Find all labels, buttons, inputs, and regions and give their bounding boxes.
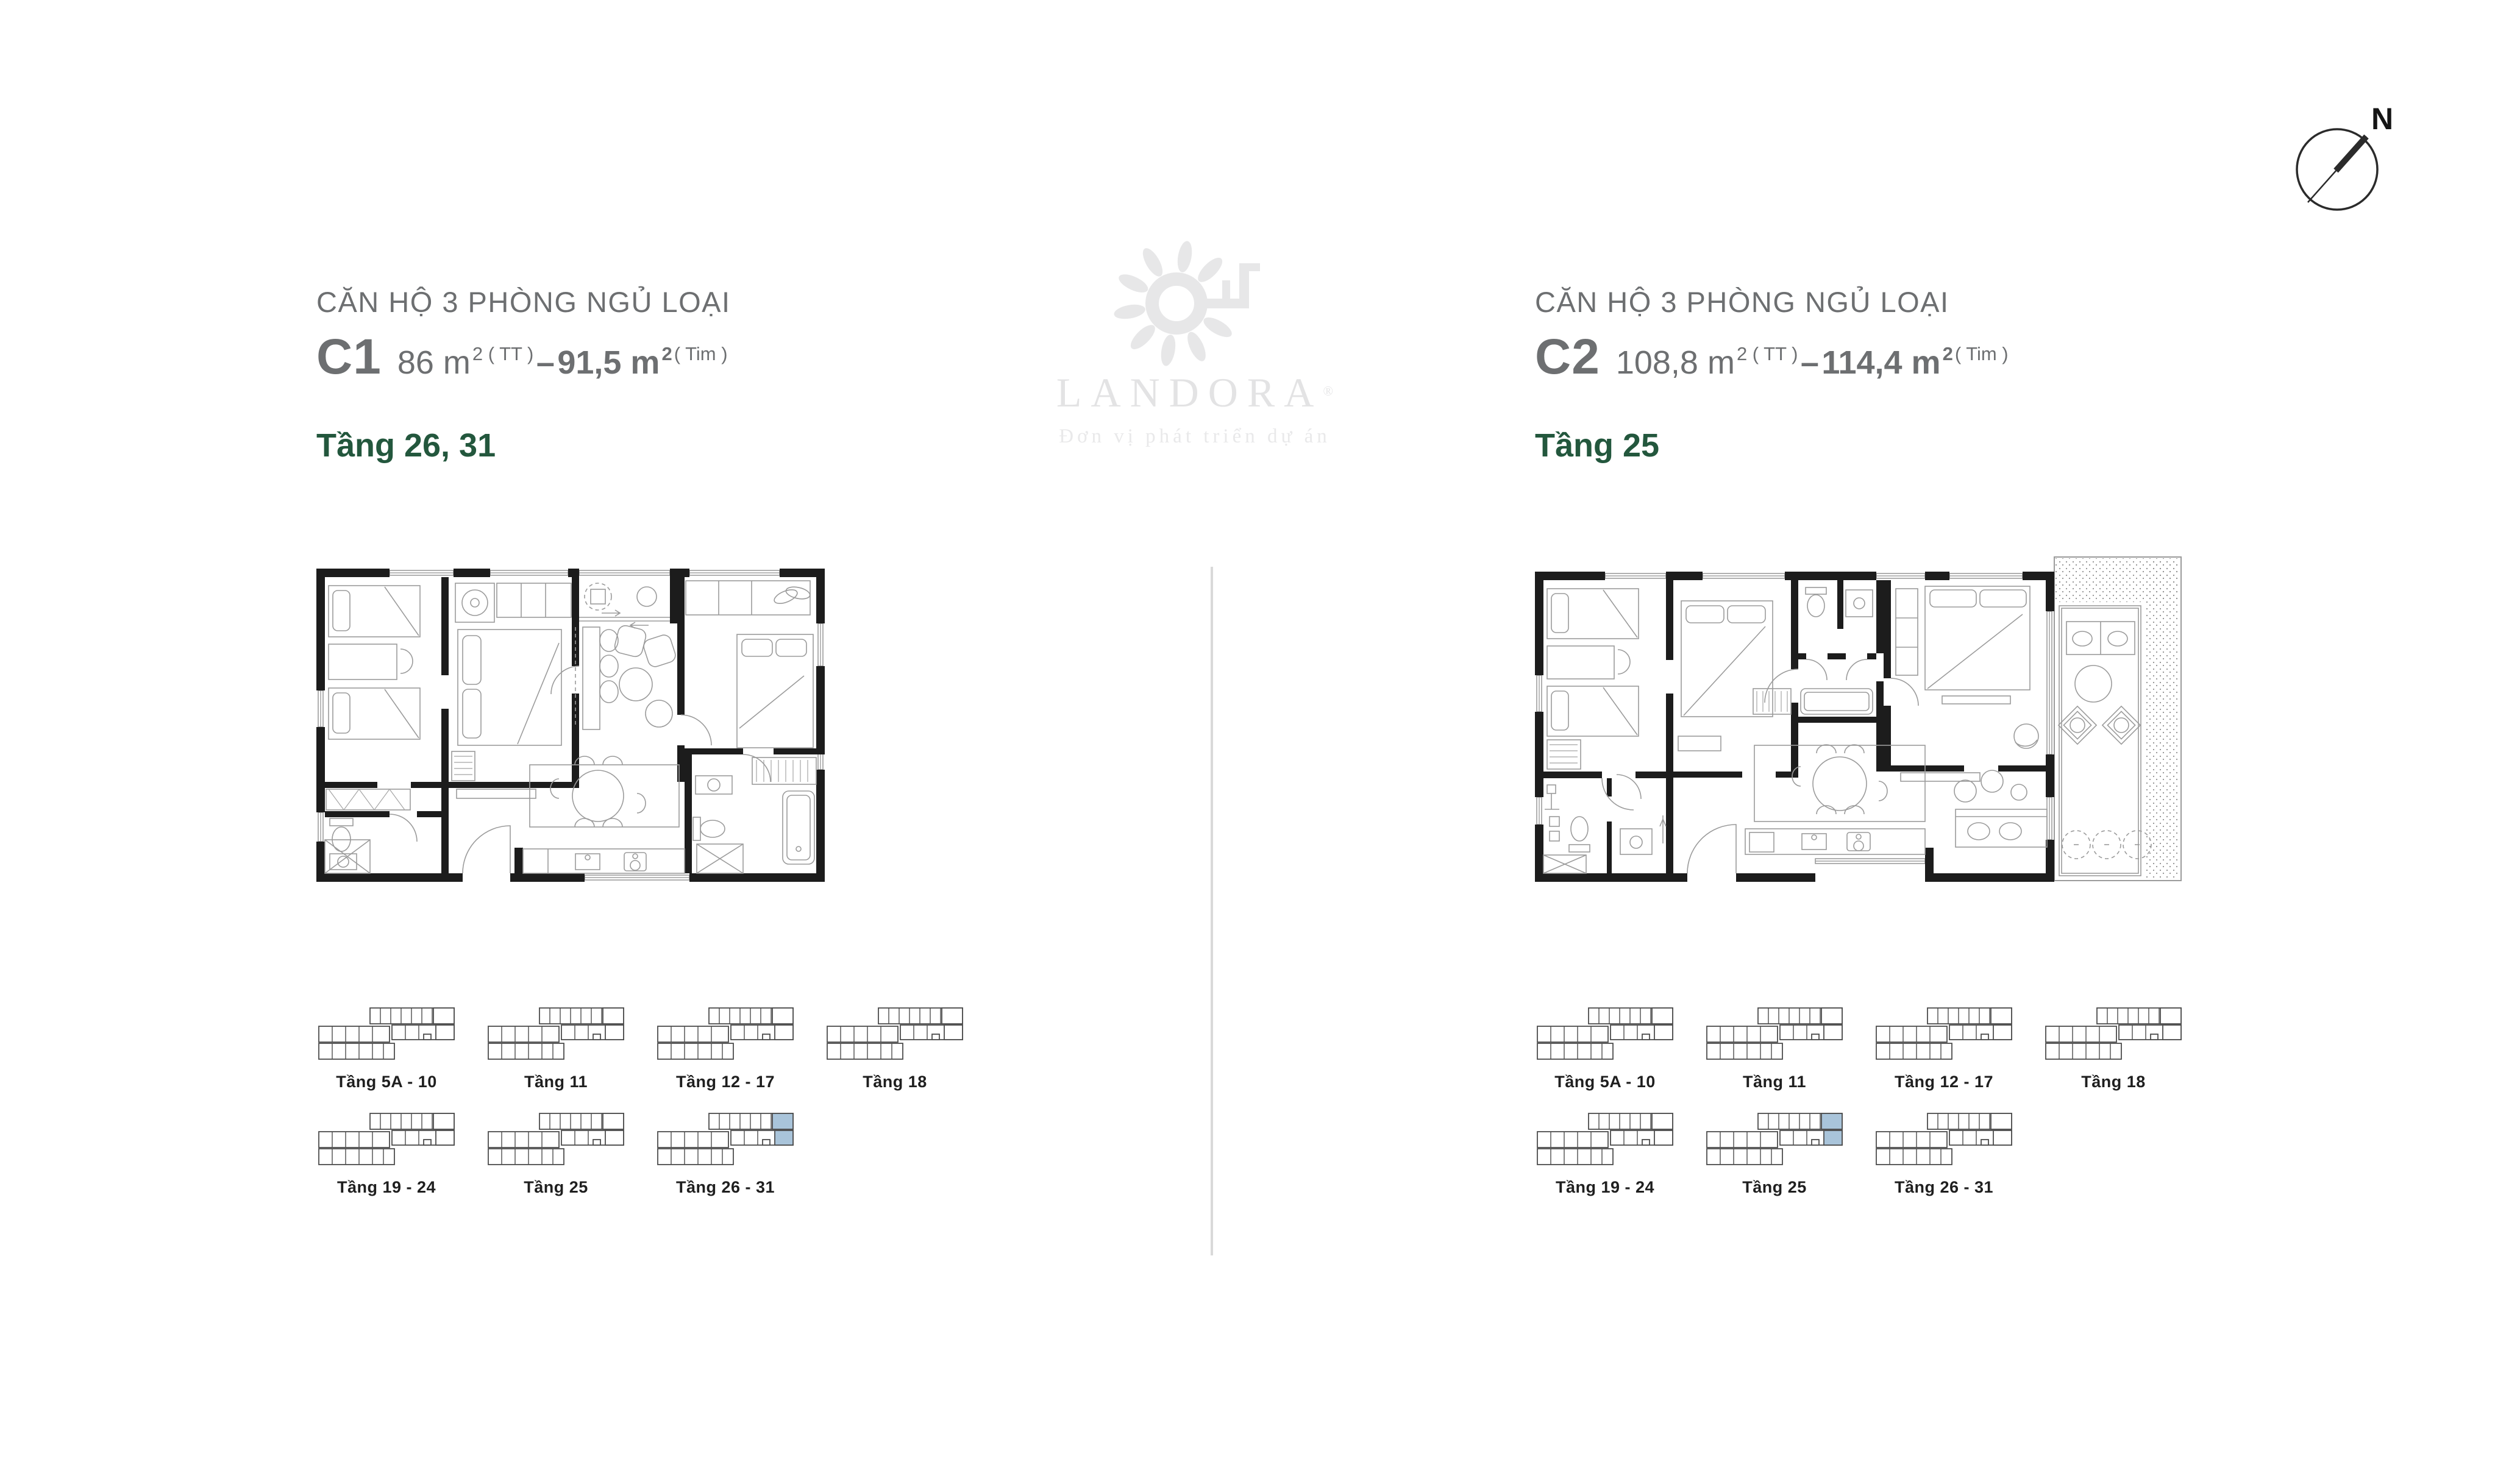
keyplan-thumbnail-icon: [1535, 1110, 1675, 1168]
c1-shaft-left: [325, 840, 370, 873]
registered-mark: ®: [1323, 383, 1333, 399]
brand-tagline: Đơn vị phát triển dự án: [1030, 425, 1359, 448]
keyplan-thumbnail-icon: [1874, 1110, 2014, 1168]
unit-c2-floors: Tầng 25: [1535, 427, 1659, 464]
keyplan-item: Tầng 25: [486, 1110, 626, 1197]
keyplan-label: Tầng 25: [486, 1178, 626, 1197]
keyplan-item: Tầng 11: [486, 1004, 626, 1091]
c2-bedroom-master: [1891, 586, 2038, 781]
c2-sofa-lounge: [1954, 770, 2047, 847]
keyplan-grid-c1: Tầng 5A - 10 Tầng 11: [316, 1004, 972, 1197]
keyplan-thumbnail-icon: [1874, 1004, 2014, 1063]
c2-bedroom-2: [1678, 601, 1798, 751]
keyplan-label: Tầng 11: [1704, 1073, 1845, 1091]
unit-c2-category: CĂN HỘ 3 PHÒNG NGỦ LOẠI: [1535, 285, 2388, 319]
keyplan-item: Tầng 26 - 31: [655, 1110, 796, 1197]
keyplan-grid-c2: Tầng 5A - 10 Tầng 11: [1535, 1004, 2190, 1197]
unit-c2-area: 108,8 m2 ( TT ) – 114,4 m2( Tim ): [1616, 344, 2009, 381]
keyplan-label: Tầng 26 - 31: [1874, 1178, 2014, 1197]
column-divider: [1211, 567, 1213, 1255]
keyplan-label: Tầng 19 - 24: [1535, 1178, 1675, 1197]
keyplan-item: Tầng 5A - 10: [316, 1004, 457, 1091]
keyplan-label: Tầng 26 - 31: [655, 1178, 796, 1197]
keyplan-item: Tầng 11: [1704, 1004, 1845, 1091]
unit-c1-category: CĂN HỘ 3 PHÒNG NGỦ LOẠI: [316, 285, 1170, 319]
keyplan-item: Tầng 12 - 17: [655, 1004, 796, 1091]
c1-bedroom-master: [452, 583, 579, 781]
keyplan-label: Tầng 25: [1704, 1178, 1845, 1197]
keyplan-thumbnail-icon: [655, 1110, 796, 1168]
keyplan-item: Tầng 19 - 24: [1535, 1110, 1675, 1197]
c2-shaft-left: [1543, 855, 1586, 873]
c1-bedroom-right: [681, 581, 813, 748]
keyplan-thumbnail-icon: [825, 1004, 965, 1063]
c2-terrace: [2054, 557, 2181, 881]
keyplan-label: Tầng 5A - 10: [1535, 1073, 1675, 1091]
unit-c2-header: CĂN HỘ 3 PHÒNG NGỦ LOẠI C2 108,8 m2 ( TT…: [1535, 285, 2388, 386]
keyplan-thumbnail-icon: [486, 1110, 626, 1168]
c2-bath-left: [1545, 775, 1666, 854]
unit-c1-area: 86 m2 ( TT ) – 91,5 m2( Tim ): [397, 344, 728, 381]
keyplan-label: Tầng 18: [825, 1073, 965, 1091]
c2-walls: [1535, 572, 2054, 882]
keyplan-item: Tầng 25: [1704, 1110, 1845, 1197]
unit-c2-spec: C2 108,8 m2 ( TT ) – 114,4 m2( Tim ): [1535, 328, 2388, 386]
keyplan-label: Tầng 18: [2043, 1073, 2184, 1091]
keyplan-label: Tầng 19 - 24: [316, 1178, 457, 1197]
keyplan-item: Tầng 26 - 31: [1874, 1110, 2014, 1197]
keyplan-thumbnail-icon: [1535, 1004, 1675, 1063]
c2-kitchen: [1745, 829, 1925, 854]
c1-living: [457, 624, 677, 798]
unit-c1-spec: C1 86 m2 ( TT ) – 91,5 m2( Tim ): [316, 328, 1170, 386]
compass-north-label: N: [2371, 102, 2393, 136]
keyplan-thumbnail-icon: [1704, 1004, 1845, 1063]
c1-bedroom-left: [329, 586, 420, 739]
c1-bath-left: [326, 789, 417, 870]
keyplan-item: Tầng 12 - 17: [1874, 1004, 2014, 1091]
c1-loggia: [579, 583, 670, 628]
unit-c1-code: C1: [316, 328, 382, 386]
keyplan-item: Tầng 18: [2043, 1004, 2184, 1091]
compass-icon: N: [2281, 95, 2427, 241]
c1-shaft-right: [697, 844, 743, 873]
c1-walls: [316, 569, 825, 882]
keyplan-thumbnail-icon: [1704, 1110, 1845, 1168]
keyplan-thumbnail-icon: [655, 1004, 796, 1063]
keyplan-thumbnail-icon: [316, 1110, 457, 1168]
keyplan-item: Tầng 18: [825, 1004, 965, 1091]
keyplan-thumbnail-icon: [486, 1004, 626, 1063]
keyplan-label: Tầng 12 - 17: [1874, 1073, 2014, 1091]
c1-kitchen: [523, 849, 685, 873]
unit-c1-floors: Tầng 26, 31: [316, 427, 496, 464]
c2-entry-door: [1687, 825, 1736, 873]
keyplan-item: Tầng 19 - 24: [316, 1110, 457, 1197]
c1-bath-right: [693, 754, 816, 864]
floor-plan-c2: [1535, 553, 2186, 882]
keyplan-item: Tầng 5A - 10: [1535, 1004, 1675, 1091]
c2-bath-top: [1753, 587, 1873, 714]
keyplan-label: Tầng 11: [486, 1073, 626, 1091]
keyplan-label: Tầng 5A - 10: [316, 1073, 457, 1091]
keyplan-label: Tầng 12 - 17: [655, 1073, 796, 1091]
keyplan-thumbnail-icon: [316, 1004, 457, 1063]
floor-plan-c1: [316, 569, 825, 882]
c2-dining: [1754, 745, 1925, 821]
page-root: { "colors": { "accent_green": "#23573d",…: [0, 0, 2520, 1476]
c1-entry-door: [463, 826, 510, 873]
unit-c2-code: C2: [1535, 328, 1600, 386]
c1-dining: [530, 756, 679, 827]
keyplan-thumbnail-icon: [2043, 1004, 2184, 1063]
unit-c1-header: CĂN HỘ 3 PHÒNG NGỦ LOẠI C1 86 m2 ( TT ) …: [316, 285, 1170, 386]
